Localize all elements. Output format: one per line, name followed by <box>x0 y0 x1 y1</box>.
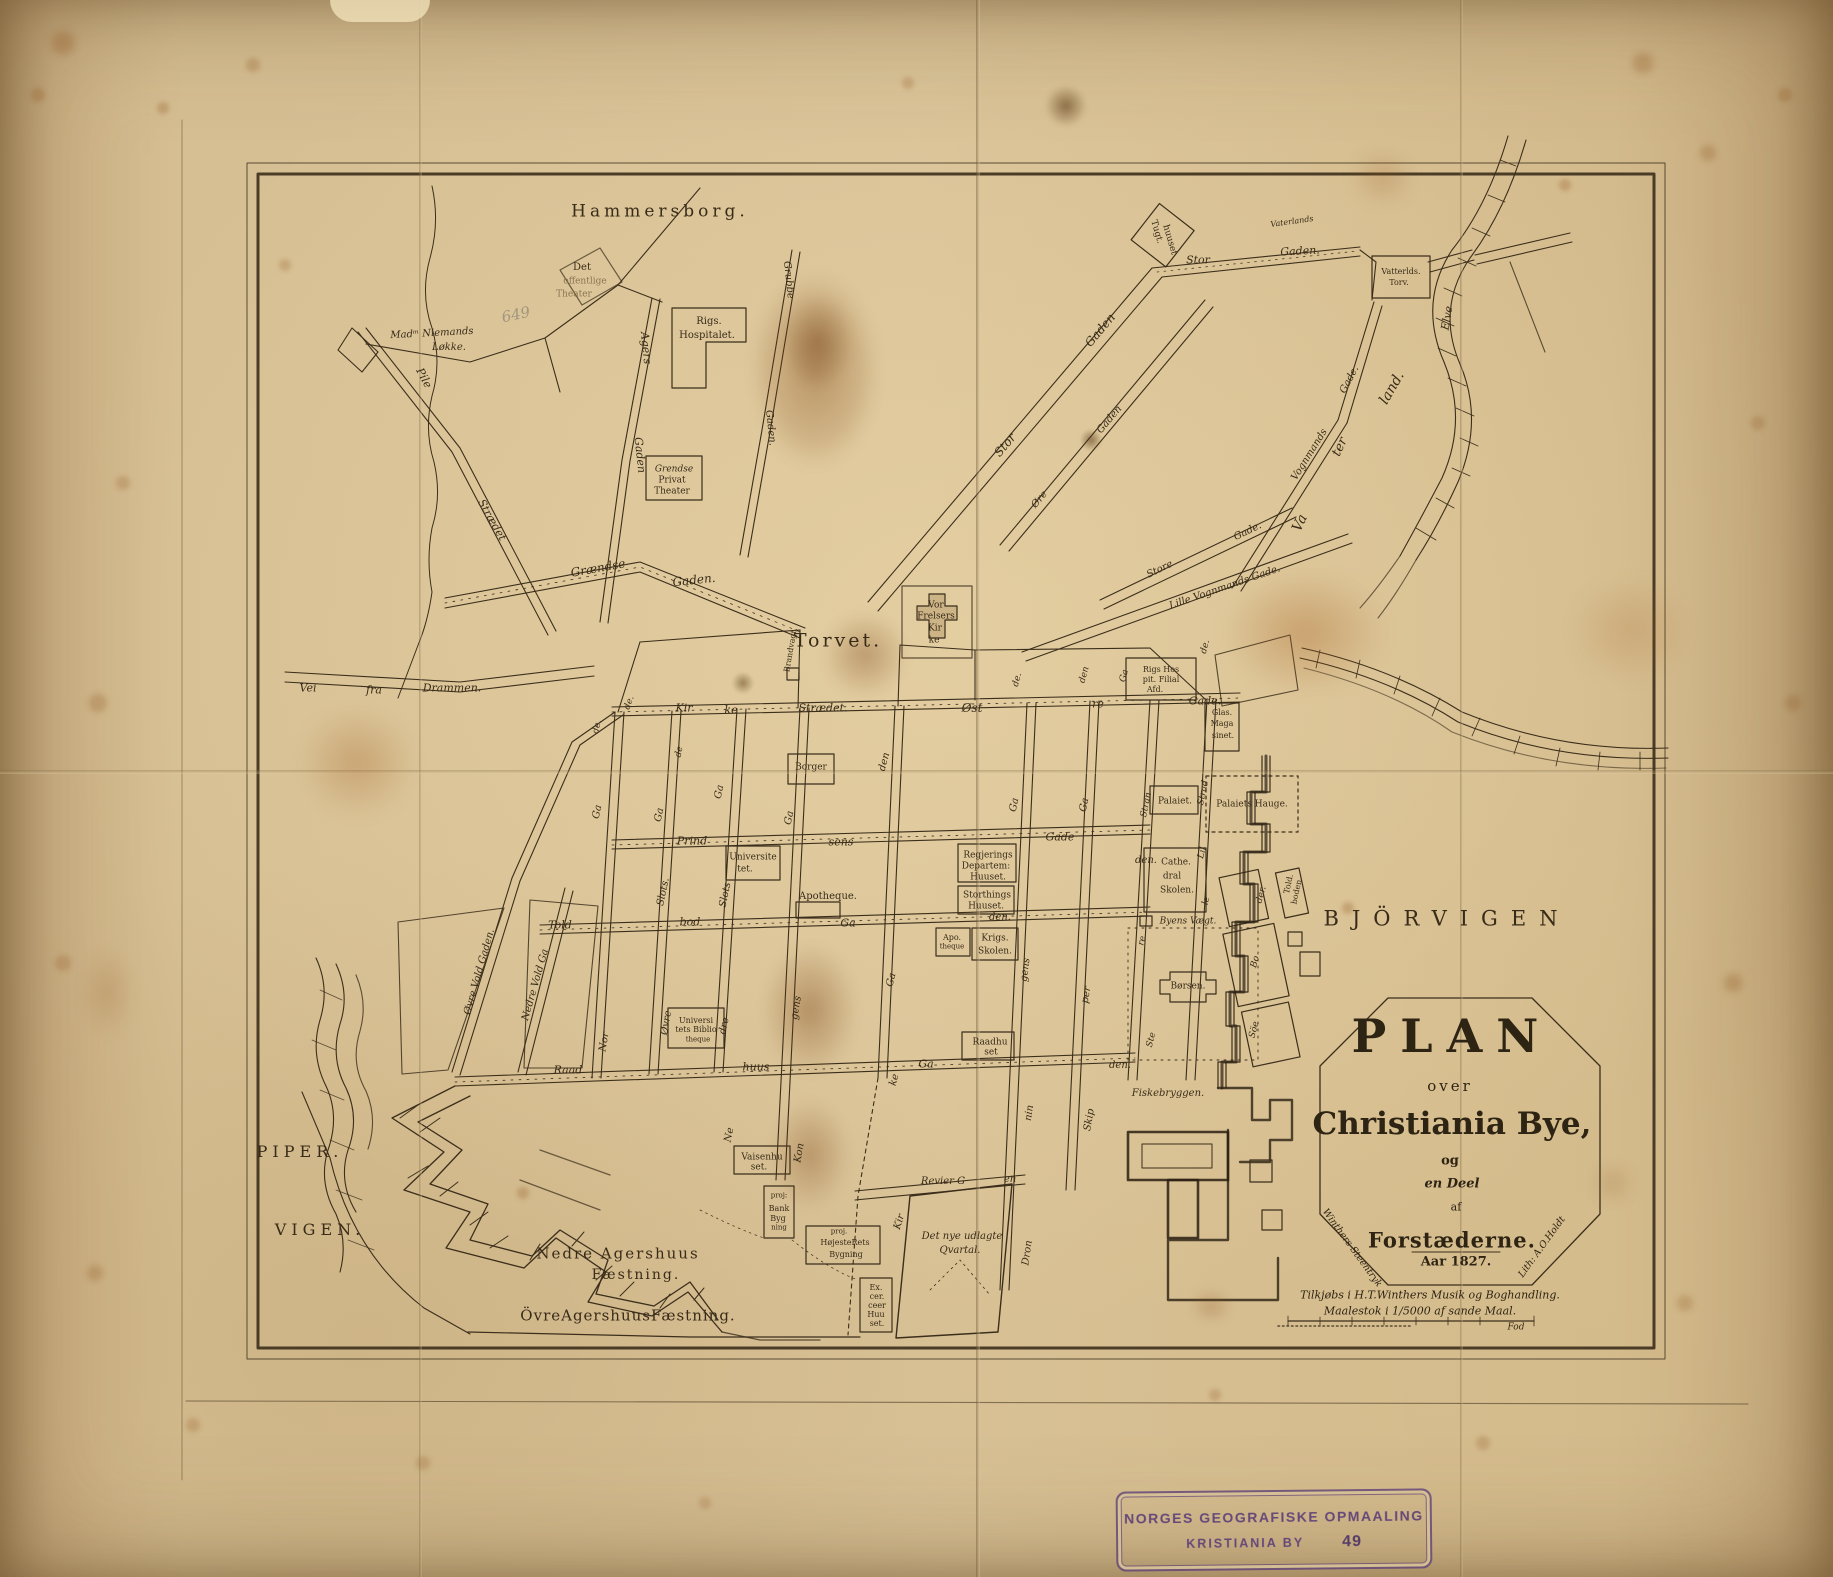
map-label: pit. Filial <box>1143 676 1180 684</box>
map-label: Byg <box>770 1215 786 1223</box>
coastline <box>1300 648 1668 770</box>
map-label: Fæstning. <box>592 1268 681 1282</box>
map-label: Vaisenhu <box>741 1154 782 1163</box>
map-label: sinet. <box>1212 732 1234 740</box>
map-label: proj: <box>771 1193 788 1200</box>
map-label: Grendse <box>655 466 693 475</box>
map-label: Gaden. <box>1280 244 1320 257</box>
map-label: Torv. <box>1389 279 1408 287</box>
map-label: set. <box>751 1164 767 1173</box>
map-label: Afd. <box>1147 686 1163 694</box>
cartouche-plan: PLAN <box>1352 1009 1553 1063</box>
map-label: Theater <box>556 291 592 300</box>
map-label: Prind <box>677 836 707 847</box>
map-label: Raad <box>554 1065 583 1076</box>
map-label: Huuset. <box>968 903 1004 912</box>
map-label: Apotheque. <box>799 892 857 902</box>
cartouche-og: og <box>1441 1154 1459 1169</box>
map-label: Palaiet. <box>1158 798 1192 807</box>
map-label: Rigs Hos <box>1143 666 1179 674</box>
map-linework <box>0 0 1833 1577</box>
map-label: Told <box>548 920 572 931</box>
map-label: Torvet. <box>794 632 882 651</box>
map-label: bod <box>680 917 701 928</box>
map-label: Kir <box>676 703 693 714</box>
map-label: Øst <box>962 702 983 714</box>
map-label: en <box>1004 1175 1016 1185</box>
map-label: ÖvreAgershuusFæstning. <box>520 1309 735 1324</box>
map-label: Krigs. <box>981 935 1008 944</box>
map-label: Løkke. <box>432 343 466 353</box>
map-label: Hammersborg. <box>571 204 749 221</box>
map-label: Raadhu <box>972 1039 1007 1048</box>
map-label: HøjesteRets <box>820 1239 869 1247</box>
map-label: Skolen. <box>1160 887 1194 896</box>
map-label: Børsen. <box>1171 983 1206 992</box>
map-label: Regjerings <box>963 852 1012 861</box>
map-label: Ga <box>840 918 855 929</box>
map-label: Ex. <box>870 1284 883 1292</box>
map-label: Fiskebryggen. <box>1132 1089 1204 1099</box>
stamp-line2: KRISTIANIA BY <box>1186 1535 1304 1550</box>
map-label: cer. <box>870 1293 885 1301</box>
map-label: ke <box>724 705 737 716</box>
map-label: Drammen. <box>423 683 482 694</box>
map-label: Fod <box>1508 1324 1525 1333</box>
map-label: set. <box>870 1320 885 1328</box>
map-label: Palaiets Hauge. <box>1216 801 1288 810</box>
map-label: PIPER. <box>257 1144 344 1160</box>
map-label: Vei <box>300 683 317 694</box>
map-label: Huuset. <box>970 874 1006 883</box>
map-label: Glas. <box>1212 709 1232 717</box>
buildings <box>560 204 1430 1338</box>
map-label: Agers <box>639 331 653 364</box>
map-label: dral <box>1163 873 1181 882</box>
scanned-map-of-christiania: Hammersborg.Torvet.BJÖRVIGENPIPER.VIGEN.… <box>0 0 1833 1577</box>
map-label: Universi <box>679 1017 713 1025</box>
map-label: Departem: <box>962 863 1010 872</box>
map-label: ning <box>771 1225 787 1232</box>
map-label: Kir <box>928 625 942 634</box>
map-label: Borger <box>795 764 827 773</box>
map-label: Gade <box>1046 832 1075 843</box>
map-label: Cathe. <box>1161 859 1191 868</box>
map-label: BJÖRVIGEN <box>1323 909 1570 930</box>
cartouche-year: Aar 1827. <box>1421 1255 1492 1270</box>
map-label: offentlige <box>563 278 606 287</box>
stamp-line1: NORGES GEOGRAFISKE OPMAALING <box>1124 1507 1424 1526</box>
map-label: re <box>1092 699 1104 710</box>
map-label: Stor <box>1186 255 1210 266</box>
fortress <box>392 1086 820 1340</box>
stamp-number: 49 <box>1342 1533 1362 1551</box>
map-label: Universite <box>729 854 776 863</box>
map-label: Maga <box>1211 720 1234 728</box>
map-label: Nedre Agershuus <box>536 1247 699 1262</box>
imprint-line2: Maalestok i 1/5000 af sande Maal. <box>1324 1305 1516 1318</box>
map-label: Hospitalet. <box>679 331 735 341</box>
map-label: Byens Vægt. <box>1160 918 1217 927</box>
cartouche-af: af <box>1451 1201 1462 1214</box>
scale-bar <box>1278 1316 1534 1326</box>
map-label: Apo. <box>943 934 961 942</box>
map-label: Gade. <box>1189 696 1221 707</box>
map-frame <box>182 120 1748 1480</box>
map-label: Skolen. <box>978 948 1012 957</box>
map-label: sens <box>829 837 854 848</box>
map-label: Det nye udlagte <box>922 1232 1003 1242</box>
map-label: Ga <box>918 1059 933 1070</box>
map-label: Huu <box>867 1311 884 1319</box>
map-label: ceer <box>868 1302 886 1310</box>
map-label: theque <box>940 944 965 951</box>
cartouche-forstaederne: Forstæderne. <box>1368 1228 1536 1253</box>
map-label: tets Biblio <box>675 1026 716 1034</box>
map-label: Strædet. <box>798 703 847 714</box>
map-label: Frelsers <box>917 613 955 622</box>
map-label: Qvartal. <box>940 1246 981 1256</box>
map-label: Privat <box>658 477 685 486</box>
map-label: Bygning <box>829 1251 863 1259</box>
map-label: Vatterlds. <box>1381 268 1420 276</box>
map-label: Theater <box>654 488 690 497</box>
map-label: Revier G <box>921 1177 965 1187</box>
map-label: Gaden <box>633 437 648 474</box>
map-label: fra <box>366 685 382 696</box>
street-network <box>285 188 1572 1335</box>
map-label: den. <box>1109 1061 1131 1071</box>
map-label: Storthings <box>963 892 1011 901</box>
map-label: ke <box>929 637 940 646</box>
map-label: set <box>984 1049 998 1058</box>
map-label: tet. <box>737 866 752 875</box>
river <box>1360 136 1526 618</box>
archive-stamp: NORGES GEOGRAFISKE OPMAALING KRISTIANIA … <box>1116 1488 1433 1571</box>
cartouche-city: Christiania Bye, <box>1313 1106 1592 1142</box>
map-label: den. <box>1135 856 1157 866</box>
map-label: proj. <box>831 1229 847 1236</box>
map-label: Bank <box>769 1205 790 1213</box>
cartouche-over: over <box>1427 1077 1473 1095</box>
map-label: Det <box>573 263 591 273</box>
map-label: huus <box>743 1062 770 1073</box>
imprint-line1: Tilkjøbs i H.T.Winthers Musik og Boghand… <box>1300 1289 1560 1302</box>
cartouche-deel: en Deel <box>1424 1177 1479 1192</box>
map-label: den. <box>989 913 1011 923</box>
map-label: Vor <box>928 602 943 611</box>
map-label: Rigs. <box>696 317 721 327</box>
map-label: theque <box>686 1037 711 1044</box>
stream-and-marsh <box>302 186 470 1334</box>
map-label: VIGEN. <box>275 1222 365 1238</box>
